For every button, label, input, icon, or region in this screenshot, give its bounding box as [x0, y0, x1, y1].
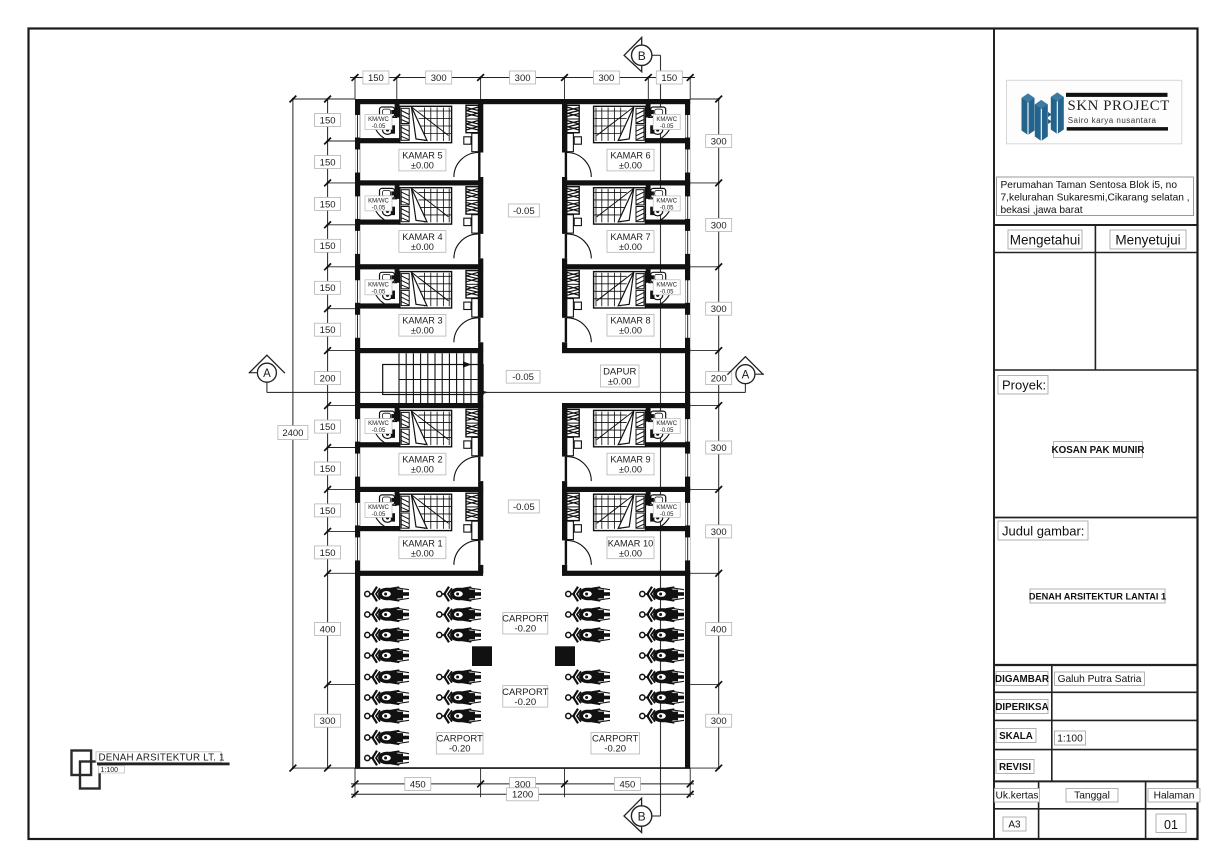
svg-text:DENAH ARSITEKTUR LT. 1: DENAH ARSITEKTUR LT. 1	[99, 753, 225, 764]
svg-text:200: 200	[711, 374, 727, 385]
svg-text:±0.00: ±0.00	[619, 548, 642, 558]
svg-text:KM/WC: KM/WC	[656, 421, 677, 427]
svg-text:B: B	[638, 810, 646, 824]
svg-text:Perumahan Taman Sentosa Blok i: Perumahan Taman Sentosa Blok i5, no	[1001, 180, 1178, 191]
svg-text:400: 400	[711, 624, 727, 635]
svg-text:±0.00: ±0.00	[619, 242, 642, 252]
svg-text:Judul gambar:: Judul gambar:	[1002, 524, 1084, 539]
svg-text:150: 150	[320, 422, 336, 433]
svg-text:1200: 1200	[512, 790, 533, 801]
svg-text:200: 200	[320, 374, 336, 385]
svg-text:150: 150	[661, 73, 677, 84]
svg-text:150: 150	[320, 325, 336, 336]
svg-text:A3: A3	[1008, 820, 1021, 831]
svg-text:Halaman: Halaman	[1154, 791, 1195, 802]
svg-text:150: 150	[368, 73, 384, 84]
svg-text:SKALA: SKALA	[999, 731, 1033, 742]
svg-text:Menyetujui: Menyetujui	[1115, 233, 1180, 248]
svg-text:B: B	[638, 49, 646, 63]
svg-text:-0.20: -0.20	[604, 744, 626, 755]
svg-text:DIGAMBAR: DIGAMBAR	[995, 674, 1049, 685]
svg-text:450: 450	[619, 779, 635, 790]
svg-text:KAMAR 2: KAMAR 2	[402, 455, 442, 465]
svg-text:150: 150	[320, 241, 336, 252]
svg-text:Mengetahui: Mengetahui	[1010, 233, 1081, 248]
svg-text:-0.05: -0.05	[660, 289, 674, 295]
svg-text:-0.05: -0.05	[660, 124, 674, 130]
svg-text:-0.05: -0.05	[372, 289, 386, 295]
svg-text:KM/WC: KM/WC	[368, 505, 389, 511]
svg-text:-0.05: -0.05	[512, 372, 534, 383]
svg-text:300: 300	[598, 73, 614, 84]
svg-text:150: 150	[320, 506, 336, 517]
svg-text:150: 150	[320, 157, 336, 168]
svg-text:Tanggal: Tanggal	[1074, 791, 1110, 802]
svg-text:KAMAR 6: KAMAR 6	[610, 150, 650, 160]
svg-text:150: 150	[320, 548, 336, 559]
svg-text:KM/WC: KM/WC	[368, 421, 389, 427]
svg-text:A: A	[742, 369, 750, 381]
svg-text:±0.00: ±0.00	[411, 326, 434, 336]
svg-text:300: 300	[711, 443, 727, 454]
svg-text:300: 300	[515, 73, 531, 84]
svg-text:KM/WC: KM/WC	[368, 282, 389, 288]
svg-text:1:100: 1:100	[1057, 734, 1083, 745]
svg-text:±0.00: ±0.00	[411, 160, 434, 170]
svg-text:-0.05: -0.05	[513, 206, 535, 217]
svg-text:-0.20: -0.20	[449, 744, 471, 755]
svg-text:KM/WC: KM/WC	[368, 117, 389, 123]
svg-text:±0.00: ±0.00	[619, 160, 642, 170]
svg-text:SKN PROJECT: SKN PROJECT	[1068, 98, 1170, 114]
svg-text:-0.05: -0.05	[660, 205, 674, 211]
svg-text:300: 300	[711, 716, 727, 727]
svg-text:400: 400	[320, 624, 336, 635]
svg-text:7,kelurahan Sukaresmi,Cikarang: 7,kelurahan Sukaresmi,Cikarang selatan ,	[1001, 193, 1190, 204]
svg-text:150: 150	[320, 283, 336, 294]
svg-text:±0.00: ±0.00	[608, 376, 632, 387]
svg-text:KAMAR 1: KAMAR 1	[402, 538, 442, 548]
svg-text:-0.05: -0.05	[372, 512, 386, 518]
svg-text:DIPERIKSA: DIPERIKSA	[995, 702, 1048, 713]
svg-text:-0.20: -0.20	[514, 624, 536, 635]
svg-text:300: 300	[320, 716, 336, 727]
svg-text:-0.05: -0.05	[660, 428, 674, 434]
svg-text:KAMAR 9: KAMAR 9	[610, 455, 650, 465]
svg-text:450: 450	[410, 779, 426, 790]
svg-text:KAMAR 4: KAMAR 4	[402, 232, 442, 242]
svg-text:REVISI: REVISI	[999, 762, 1031, 773]
svg-text:±0.00: ±0.00	[411, 465, 434, 475]
svg-text:±0.00: ±0.00	[411, 242, 434, 252]
svg-text:300: 300	[711, 527, 727, 538]
svg-text:300: 300	[431, 73, 447, 84]
svg-text:A: A	[263, 368, 271, 380]
svg-text:KAMAR 3: KAMAR 3	[402, 316, 442, 326]
svg-text:1:100: 1:100	[101, 767, 119, 774]
svg-text:KM/WC: KM/WC	[656, 505, 677, 511]
svg-text:KAMAR 8: KAMAR 8	[610, 316, 650, 326]
svg-text:-0.20: -0.20	[514, 697, 536, 708]
svg-text:KOSAN PAK MUNIR: KOSAN PAK MUNIR	[1052, 445, 1145, 456]
svg-text:-0.05: -0.05	[513, 502, 535, 513]
svg-text:KM/WC: KM/WC	[656, 198, 677, 204]
svg-text:150: 150	[320, 199, 336, 210]
svg-text:DENAH ARSITEKTUR LANTAI 1: DENAH ARSITEKTUR LANTAI 1	[1029, 592, 1166, 602]
svg-text:Proyek:: Proyek:	[1002, 378, 1046, 393]
svg-text:KAMAR 10: KAMAR 10	[608, 538, 653, 548]
svg-text:300: 300	[711, 220, 727, 231]
svg-text:KAMAR 7: KAMAR 7	[610, 232, 650, 242]
svg-text:01: 01	[1164, 818, 1178, 832]
svg-text:±0.00: ±0.00	[411, 548, 434, 558]
svg-text:bekasi ,jawa barat: bekasi ,jawa barat	[1001, 205, 1083, 216]
svg-text:Sairo karya nusantara: Sairo karya nusantara	[1068, 116, 1157, 125]
svg-text:300: 300	[711, 136, 727, 147]
svg-text:150: 150	[320, 115, 336, 126]
svg-text:-0.05: -0.05	[372, 205, 386, 211]
svg-text:300: 300	[711, 304, 727, 315]
svg-text:Uk.kertas: Uk.kertas	[995, 791, 1038, 802]
svg-text:-0.05: -0.05	[372, 428, 386, 434]
svg-text:KM/WC: KM/WC	[656, 282, 677, 288]
svg-text:KM/WC: KM/WC	[368, 198, 389, 204]
svg-text:±0.00: ±0.00	[619, 326, 642, 336]
svg-text:±0.00: ±0.00	[619, 465, 642, 475]
svg-text:Galuh Putra Satria: Galuh Putra Satria	[1058, 674, 1142, 685]
svg-text:2400: 2400	[282, 428, 303, 439]
svg-text:-0.05: -0.05	[372, 124, 386, 130]
svg-text:KM/WC: KM/WC	[656, 117, 677, 123]
svg-text:-0.05: -0.05	[660, 512, 674, 518]
svg-text:150: 150	[320, 464, 336, 475]
svg-text:KAMAR 5: KAMAR 5	[402, 150, 442, 160]
